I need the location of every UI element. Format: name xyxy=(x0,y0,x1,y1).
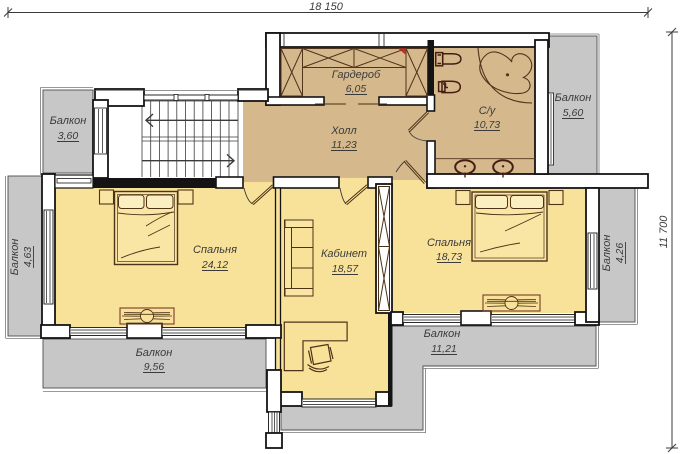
svg-text:10,73: 10,73 xyxy=(474,119,500,131)
svg-text:Спальня: Спальня xyxy=(427,237,471,249)
svg-text:Гардероб: Гардероб xyxy=(332,69,381,81)
svg-text:Спальня: Спальня xyxy=(193,244,237,256)
svg-text:Холл: Холл xyxy=(330,125,356,137)
svg-text:18,57: 18,57 xyxy=(332,263,359,275)
svg-text:С/у: С/у xyxy=(479,105,497,117)
svg-text:9,56: 9,56 xyxy=(144,361,165,373)
svg-text:Балкон: Балкон xyxy=(50,115,87,127)
svg-text:3,60: 3,60 xyxy=(58,130,79,142)
svg-text:5,60: 5,60 xyxy=(563,107,584,119)
svg-text:6,05: 6,05 xyxy=(346,83,367,95)
svg-text:Балкон: Балкон xyxy=(136,347,173,359)
svg-text:Кабинет: Кабинет xyxy=(321,248,367,260)
svg-text:Балкон: Балкон xyxy=(424,328,461,340)
svg-text:18 150: 18 150 xyxy=(309,1,344,13)
svg-text:4,26: 4,26 xyxy=(614,243,626,264)
svg-text:11,23: 11,23 xyxy=(331,139,357,151)
svg-text:18,73: 18,73 xyxy=(436,251,462,263)
svg-text:11,21: 11,21 xyxy=(431,343,457,355)
svg-text:Балкон: Балкон xyxy=(601,235,613,272)
svg-text:Балкон: Балкон xyxy=(9,239,21,276)
svg-text:24,12: 24,12 xyxy=(201,259,228,271)
svg-text:4,63: 4,63 xyxy=(22,247,34,268)
svg-text:11 700: 11 700 xyxy=(658,215,670,249)
svg-text:Балкон: Балкон xyxy=(555,92,592,104)
